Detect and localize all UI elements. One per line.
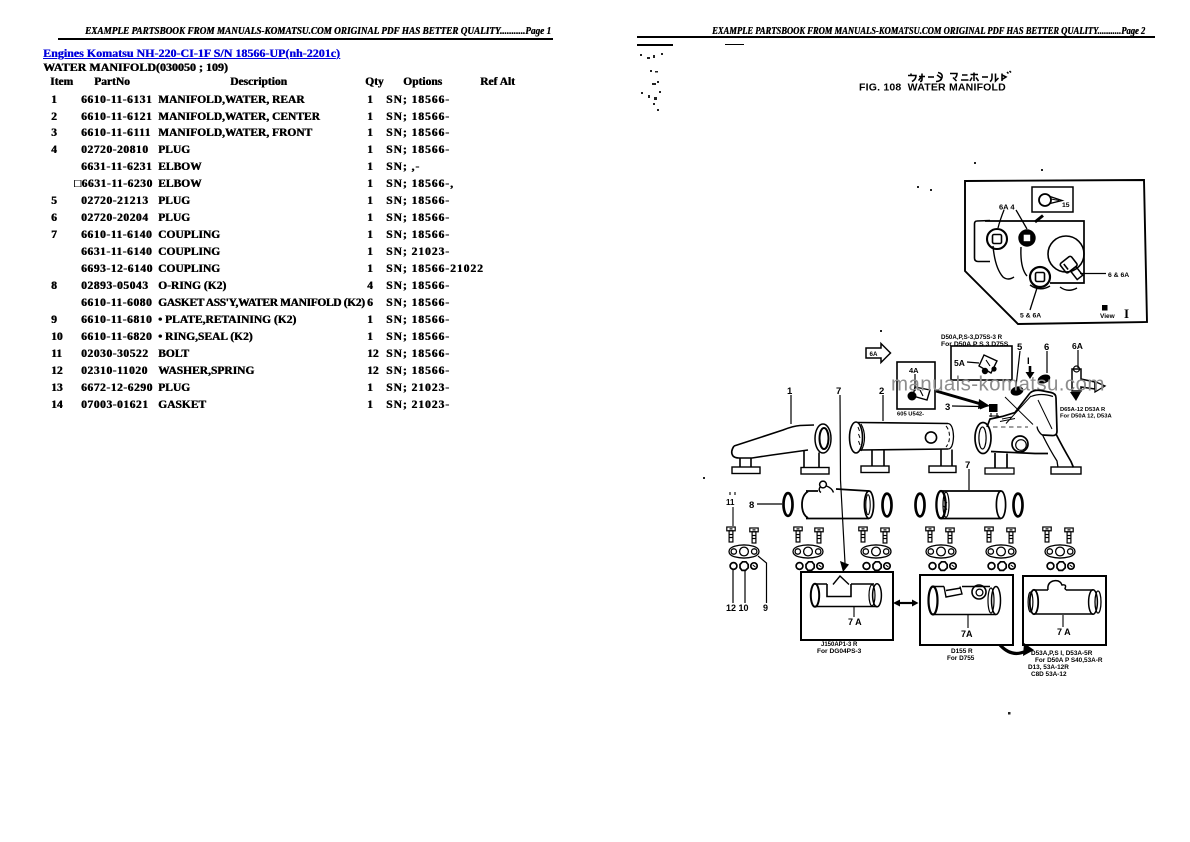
svg-text:D65A-12 D53A R: D65A-12 D53A R [1060, 407, 1106, 413]
svg-text:FIG. 108 WATER MANIFOLD: FIG. 108 WATER MANIFOLD [859, 82, 1006, 94]
svg-text:9: 9 [763, 603, 768, 613]
svg-text:For D50A 12, D53A: For D50A 12, D53A [1060, 414, 1112, 420]
svg-text:6A: 6A [870, 351, 878, 358]
svg-text:5 & 6A: 5 & 6A [1020, 313, 1041, 320]
svg-text:I: I [1027, 356, 1030, 367]
svg-text:5A: 5A [954, 358, 965, 368]
svg-text:1: 1 [787, 386, 793, 397]
svg-text:6A 4: 6A 4 [999, 203, 1015, 212]
svg-text:D53A,P,S I, D53A-5R: D53A,P,S I, D53A-5R [1031, 650, 1093, 657]
svg-text:For D50A P S40,53A-R: For D50A P S40,53A-R [1035, 657, 1103, 664]
svg-text:605 U542-: 605 U542- [897, 412, 924, 418]
svg-text:For D755: For D755 [947, 655, 975, 662]
svg-text:6 & 6A: 6 & 6A [1108, 272, 1129, 279]
svg-text:I: I [1124, 306, 1129, 321]
svg-text:6A: 6A [1072, 341, 1083, 351]
svg-text:View: View [1100, 313, 1116, 320]
svg-text:7 A: 7 A [848, 617, 862, 627]
svg-text:11: 11 [726, 498, 735, 507]
svg-text:3: 3 [945, 402, 950, 413]
svg-text:7A: 7A [961, 629, 973, 639]
svg-text:12 10: 12 10 [726, 603, 749, 613]
svg-text:manuals-komatsu.com: manuals-komatsu.com [891, 373, 1105, 396]
svg-text:8: 8 [749, 500, 754, 511]
svg-text:For DG04PS-3: For DG04PS-3 [817, 648, 862, 655]
svg-text:7 A: 7 A [1057, 627, 1071, 637]
svg-text:15: 15 [1062, 202, 1070, 209]
svg-text:D50A,P,S-3,D75S-3 R: D50A,P,S-3,D75S-3 R [941, 334, 1003, 341]
svg-text:D13, 53A-12R: D13, 53A-12R [1028, 664, 1069, 671]
svg-text:C8D 53A-12: C8D 53A-12 [1031, 671, 1067, 678]
svg-text:D155 R: D155 R [951, 648, 973, 655]
